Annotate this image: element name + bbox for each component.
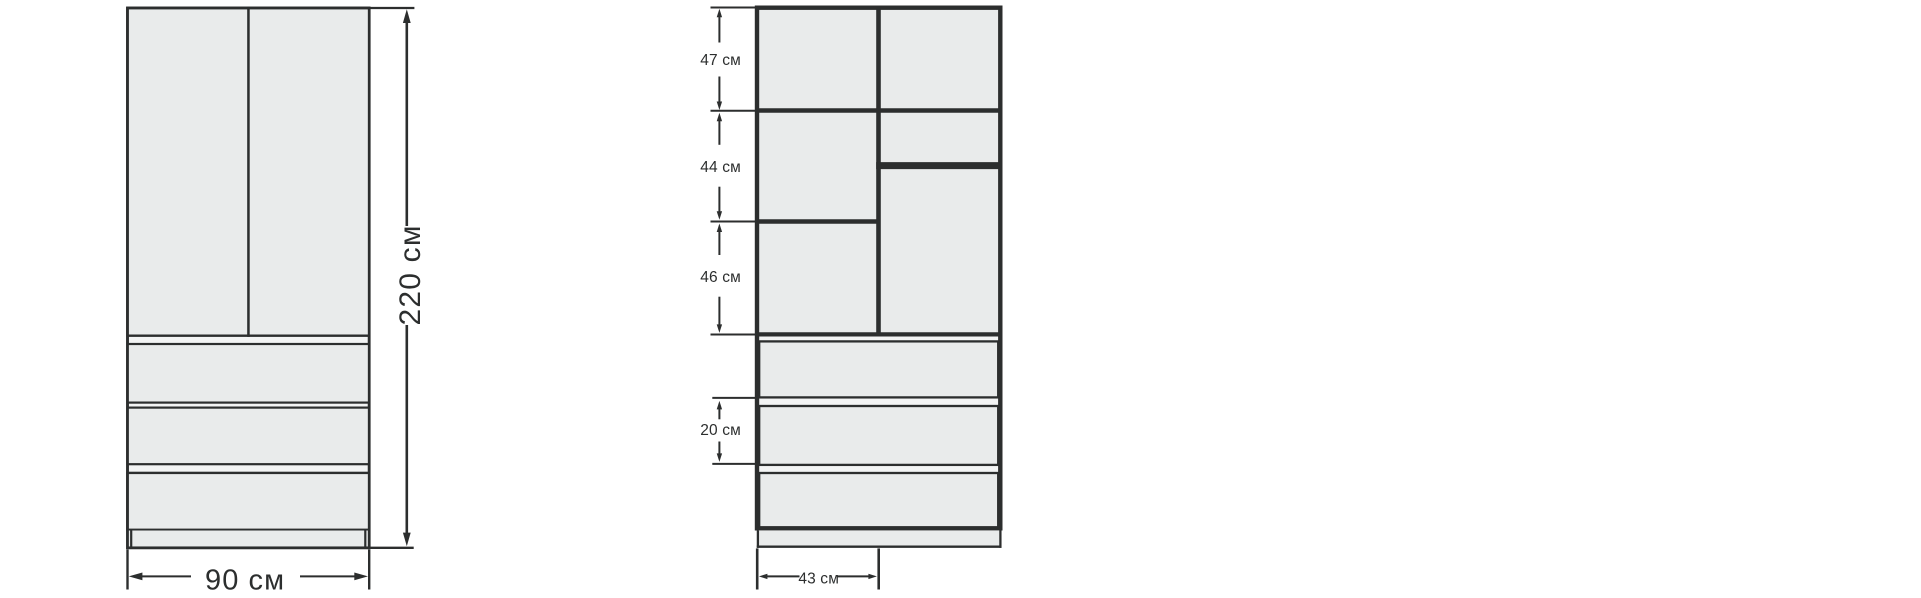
svg-text:90 см: 90 см bbox=[205, 565, 284, 597]
svg-text:46 см: 46 см bbox=[700, 269, 741, 286]
svg-text:20 см: 20 см bbox=[700, 422, 741, 439]
svg-text:44 см: 44 см bbox=[700, 159, 741, 176]
svg-text:220 см: 220 см bbox=[394, 226, 427, 326]
svg-text:43 см: 43 см bbox=[798, 571, 839, 588]
svg-text:47 см: 47 см bbox=[700, 52, 741, 69]
